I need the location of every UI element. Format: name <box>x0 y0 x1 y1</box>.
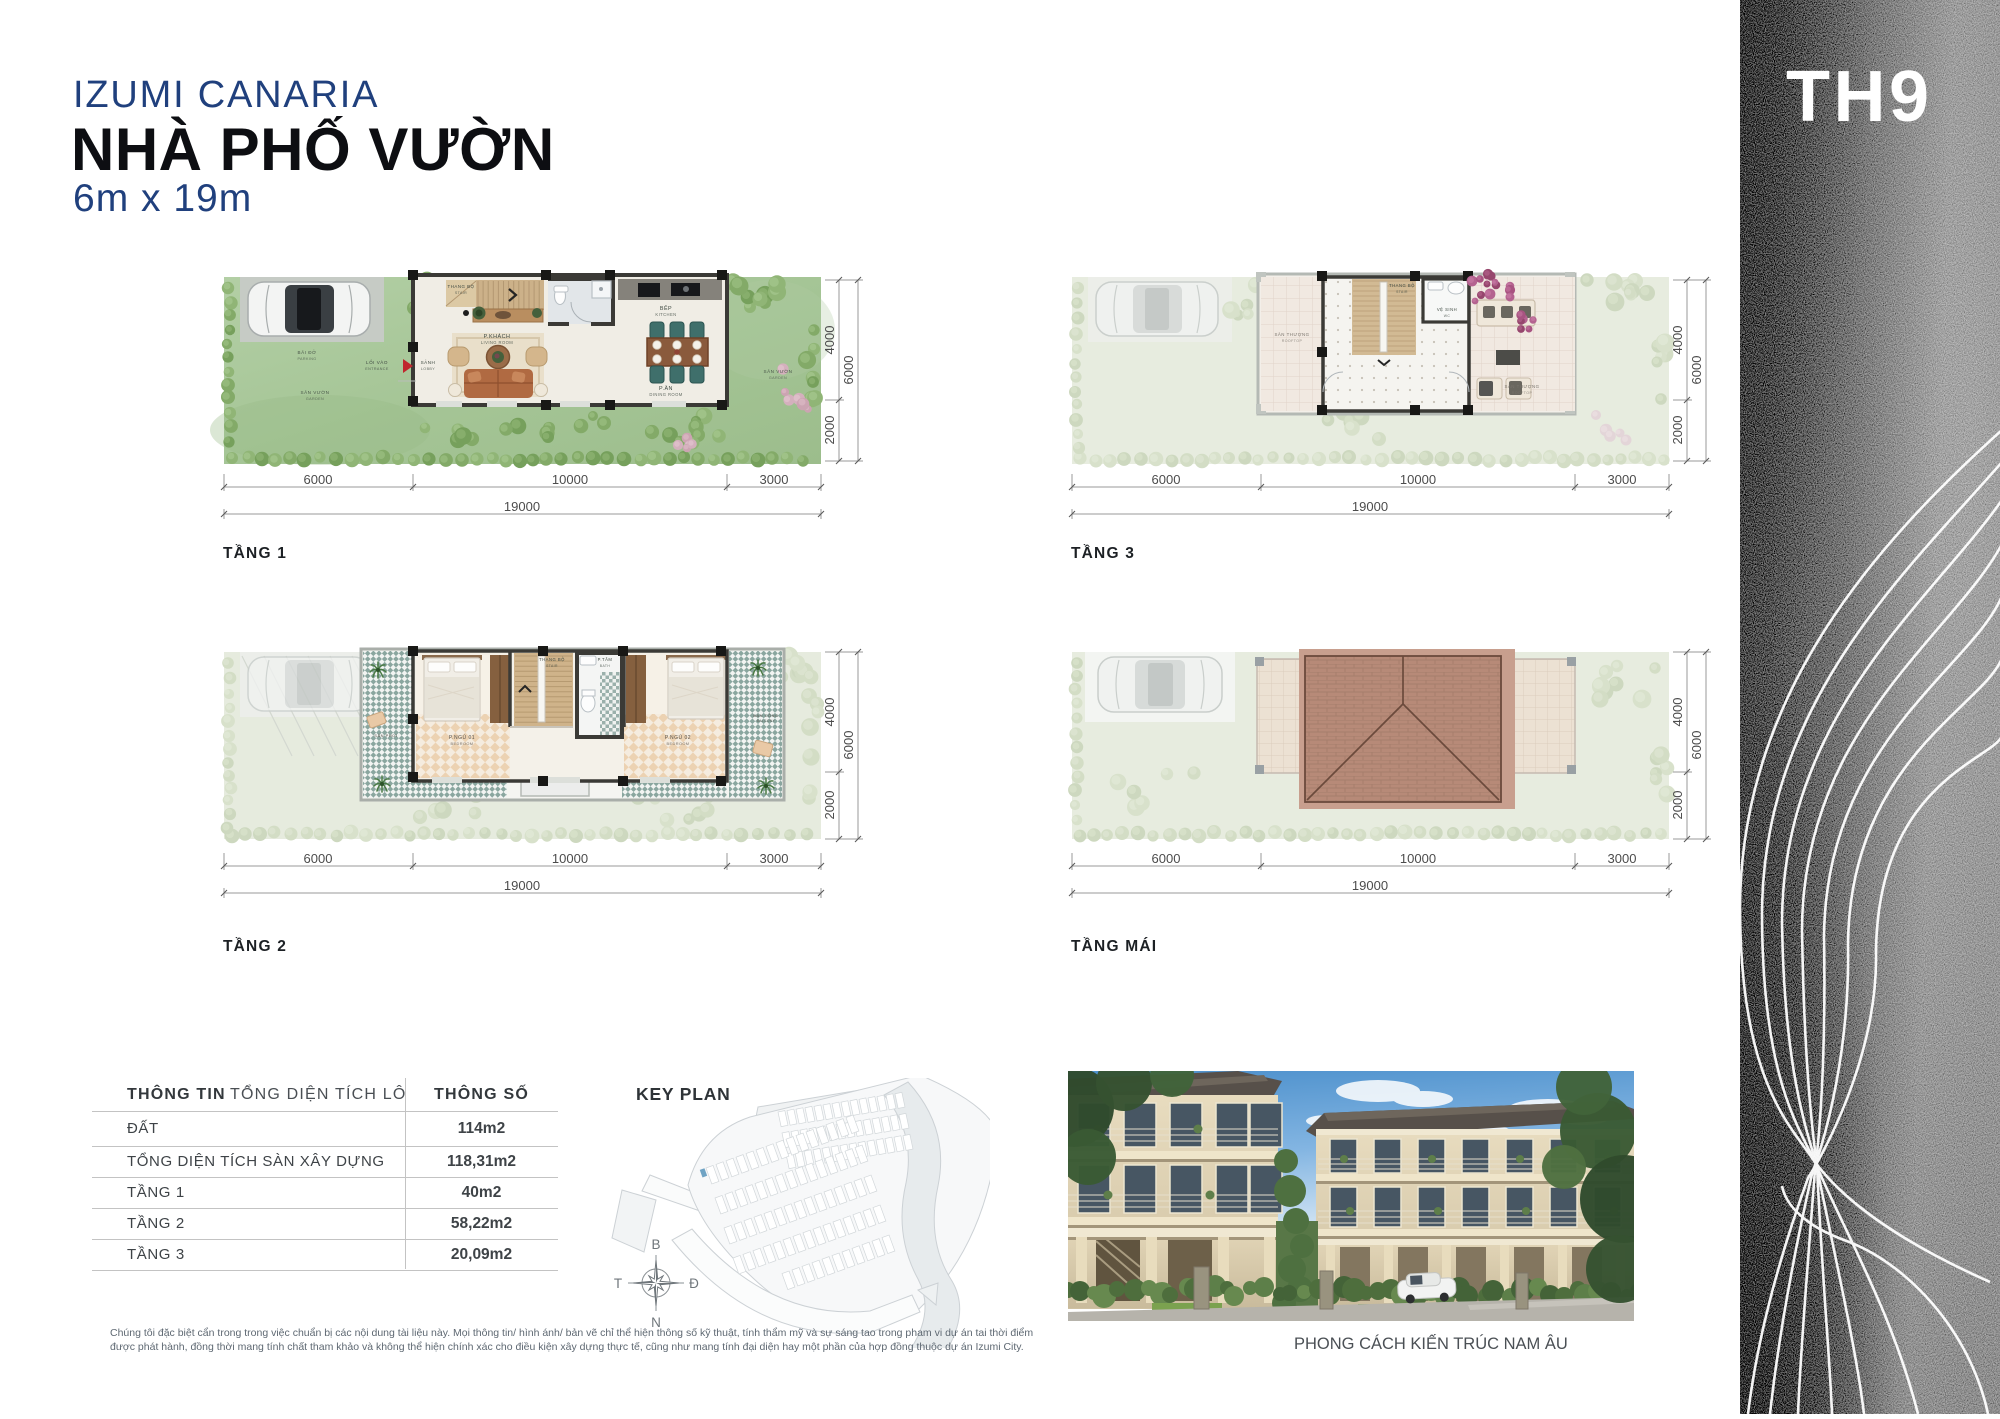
svg-text:4000: 4000 <box>1670 326 1685 355</box>
svg-text:WC: WC <box>1444 314 1451 318</box>
svg-text:SÂN PHƠI: SÂN PHƠI <box>374 733 397 738</box>
svg-text:10000: 10000 <box>1400 851 1436 866</box>
svg-text:6000: 6000 <box>304 851 333 866</box>
svg-text:6000: 6000 <box>1152 472 1181 487</box>
svg-text:BAN CÔNG: BAN CÔNG <box>753 713 778 718</box>
svg-text:4000: 4000 <box>822 698 837 727</box>
svg-text:SÂN THƯỢNG: SÂN THƯỢNG <box>1504 384 1539 389</box>
svg-text:19000: 19000 <box>504 499 540 514</box>
svg-text:3000: 3000 <box>1608 851 1637 866</box>
svg-text:SẢNH: SẢNH <box>421 359 436 365</box>
svg-text:P.ÄN: P.ÄN <box>659 385 673 392</box>
svg-text:10000: 10000 <box>552 472 588 487</box>
svg-text:6000: 6000 <box>304 472 333 487</box>
svg-text:6000: 6000 <box>1152 851 1181 866</box>
svg-text:GARDEN: GARDEN <box>769 376 787 380</box>
svg-text:10000: 10000 <box>552 851 588 866</box>
svg-text:6000: 6000 <box>841 356 856 385</box>
svg-text:3000: 3000 <box>760 851 789 866</box>
svg-text:THANG BỘ: THANG BỘ <box>1389 283 1415 288</box>
svg-text:2000: 2000 <box>1670 416 1685 445</box>
svg-text:ROOFTOP: ROOFTOP <box>1512 391 1533 395</box>
svg-text:6000: 6000 <box>841 731 856 760</box>
svg-text:6000: 6000 <box>1689 356 1704 385</box>
svg-text:19000: 19000 <box>1352 499 1388 514</box>
svg-text:19000: 19000 <box>504 878 540 893</box>
svg-text:STAIR: STAIR <box>455 291 467 295</box>
svg-text:SÂN THƯỢNG: SÂN THƯỢNG <box>1274 332 1309 337</box>
svg-text:KEY PLAN: KEY PLAN <box>636 1084 731 1104</box>
svg-text:KITCHEN: KITCHEN <box>655 312 676 317</box>
svg-text:ENTRANCE: ENTRANCE <box>365 367 389 371</box>
svg-text:4000: 4000 <box>1670 698 1685 727</box>
svg-text:2000: 2000 <box>1670 791 1685 820</box>
svg-text:SÂN VƯỜN: SÂN VƯỜN <box>764 368 793 374</box>
svg-text:Đ: Đ <box>689 1276 699 1291</box>
svg-text:LỐI VÀO: LỐI VÀO <box>366 359 388 365</box>
svg-text:2000: 2000 <box>822 416 837 445</box>
svg-text:THANG BỘ: THANG BỘ <box>539 657 565 662</box>
svg-text:6000: 6000 <box>1689 731 1704 760</box>
svg-text:STAIR: STAIR <box>546 664 558 668</box>
svg-text:BÃI ĐỞ: BÃI ĐỞ <box>298 349 317 355</box>
svg-text:GARDEN: GARDEN <box>306 397 324 401</box>
svg-text:BEDROOM: BEDROOM <box>451 741 474 746</box>
svg-text:STAIR: STAIR <box>1396 290 1408 294</box>
svg-text:BATH: BATH <box>600 664 611 668</box>
svg-text:BALCONY: BALCONY <box>757 719 776 723</box>
svg-text:LOBBY: LOBBY <box>421 367 435 371</box>
svg-text:VỆ SINH: VỆ SINH <box>1437 307 1457 312</box>
svg-text:P.TẮM: P.TẮM <box>598 657 613 662</box>
svg-text:4000: 4000 <box>822 326 837 355</box>
svg-text:2000: 2000 <box>822 791 837 820</box>
svg-text:3000: 3000 <box>760 472 789 487</box>
svg-text:10000: 10000 <box>1400 472 1436 487</box>
svg-text:ROOFTOP: ROOFTOP <box>1282 339 1303 343</box>
svg-text:T: T <box>614 1276 622 1291</box>
svg-text:SÂN VƯỜN: SÂN VƯỜN <box>301 389 330 395</box>
svg-text:DINING ROOM: DINING ROOM <box>649 392 682 397</box>
svg-text:3000: 3000 <box>1608 472 1637 487</box>
svg-text:PARKING: PARKING <box>297 357 316 361</box>
svg-text:P.NGỦ 02: P.NGỦ 02 <box>665 734 691 741</box>
svg-text:BEDROOM: BEDROOM <box>667 741 690 746</box>
svg-text:B: B <box>651 1237 660 1252</box>
svg-text:19000: 19000 <box>1352 878 1388 893</box>
svg-text:THANG BỘ: THANG BỘ <box>448 284 475 289</box>
svg-text:LIVING ROOM: LIVING ROOM <box>481 340 513 345</box>
svg-text:P.KHÁCH: P.KHÁCH <box>484 333 511 340</box>
svg-text:TH9: TH9 <box>1786 57 1933 137</box>
svg-text:P.NGỦ 01: P.NGỦ 01 <box>449 734 475 741</box>
svg-text:BỄP: BỄP <box>660 305 672 312</box>
